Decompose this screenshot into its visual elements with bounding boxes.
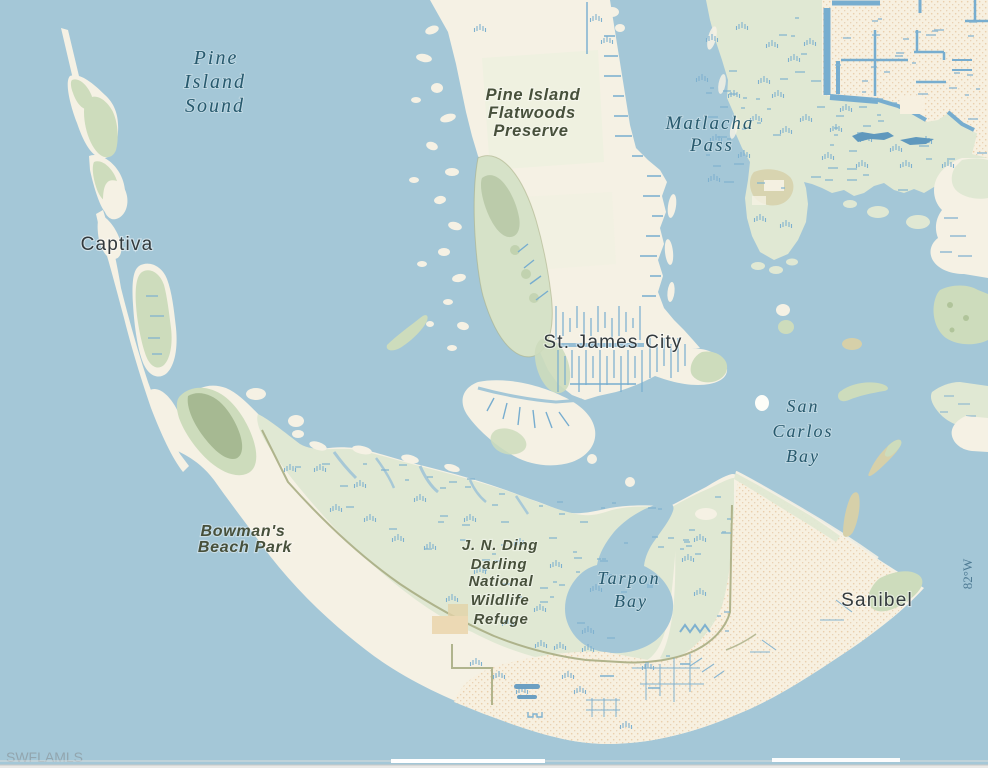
svg-text:Beach Park: Beach Park (198, 539, 293, 556)
svg-text:Matlacha: Matlacha (665, 113, 755, 134)
svg-text:Preserve: Preserve (493, 122, 568, 140)
svg-text:St. James City: St. James City (543, 332, 682, 353)
svg-text:Carlos: Carlos (772, 421, 833, 441)
svg-text:SWFLAMLS: SWFLAMLS (6, 749, 83, 765)
svg-text:National: National (469, 573, 534, 590)
svg-text:Flatwoods: Flatwoods (488, 104, 576, 122)
svg-text:Bay: Bay (786, 446, 820, 466)
svg-text:Sanibel: Sanibel (841, 590, 913, 611)
svg-text:Darling: Darling (471, 556, 528, 573)
svg-text:J. N. Ding: J. N. Ding (462, 537, 538, 554)
svg-text:Tarpon: Tarpon (597, 568, 660, 588)
svg-text:Wildlife: Wildlife (471, 592, 530, 609)
svg-text:82°W: 82°W (960, 558, 975, 589)
svg-text:Island: Island (183, 71, 246, 93)
svg-text:Refuge: Refuge (473, 611, 528, 628)
svg-text:San: San (787, 396, 820, 416)
svg-text:Bay: Bay (614, 591, 648, 611)
svg-text:Sound: Sound (185, 95, 245, 117)
svg-text:Pine: Pine (193, 47, 239, 69)
svg-text:Pine Island: Pine Island (486, 86, 581, 104)
svg-text:Bowman's: Bowman's (201, 523, 286, 540)
svg-text:Pass: Pass (689, 135, 734, 156)
svg-text:Captiva: Captiva (81, 234, 154, 255)
